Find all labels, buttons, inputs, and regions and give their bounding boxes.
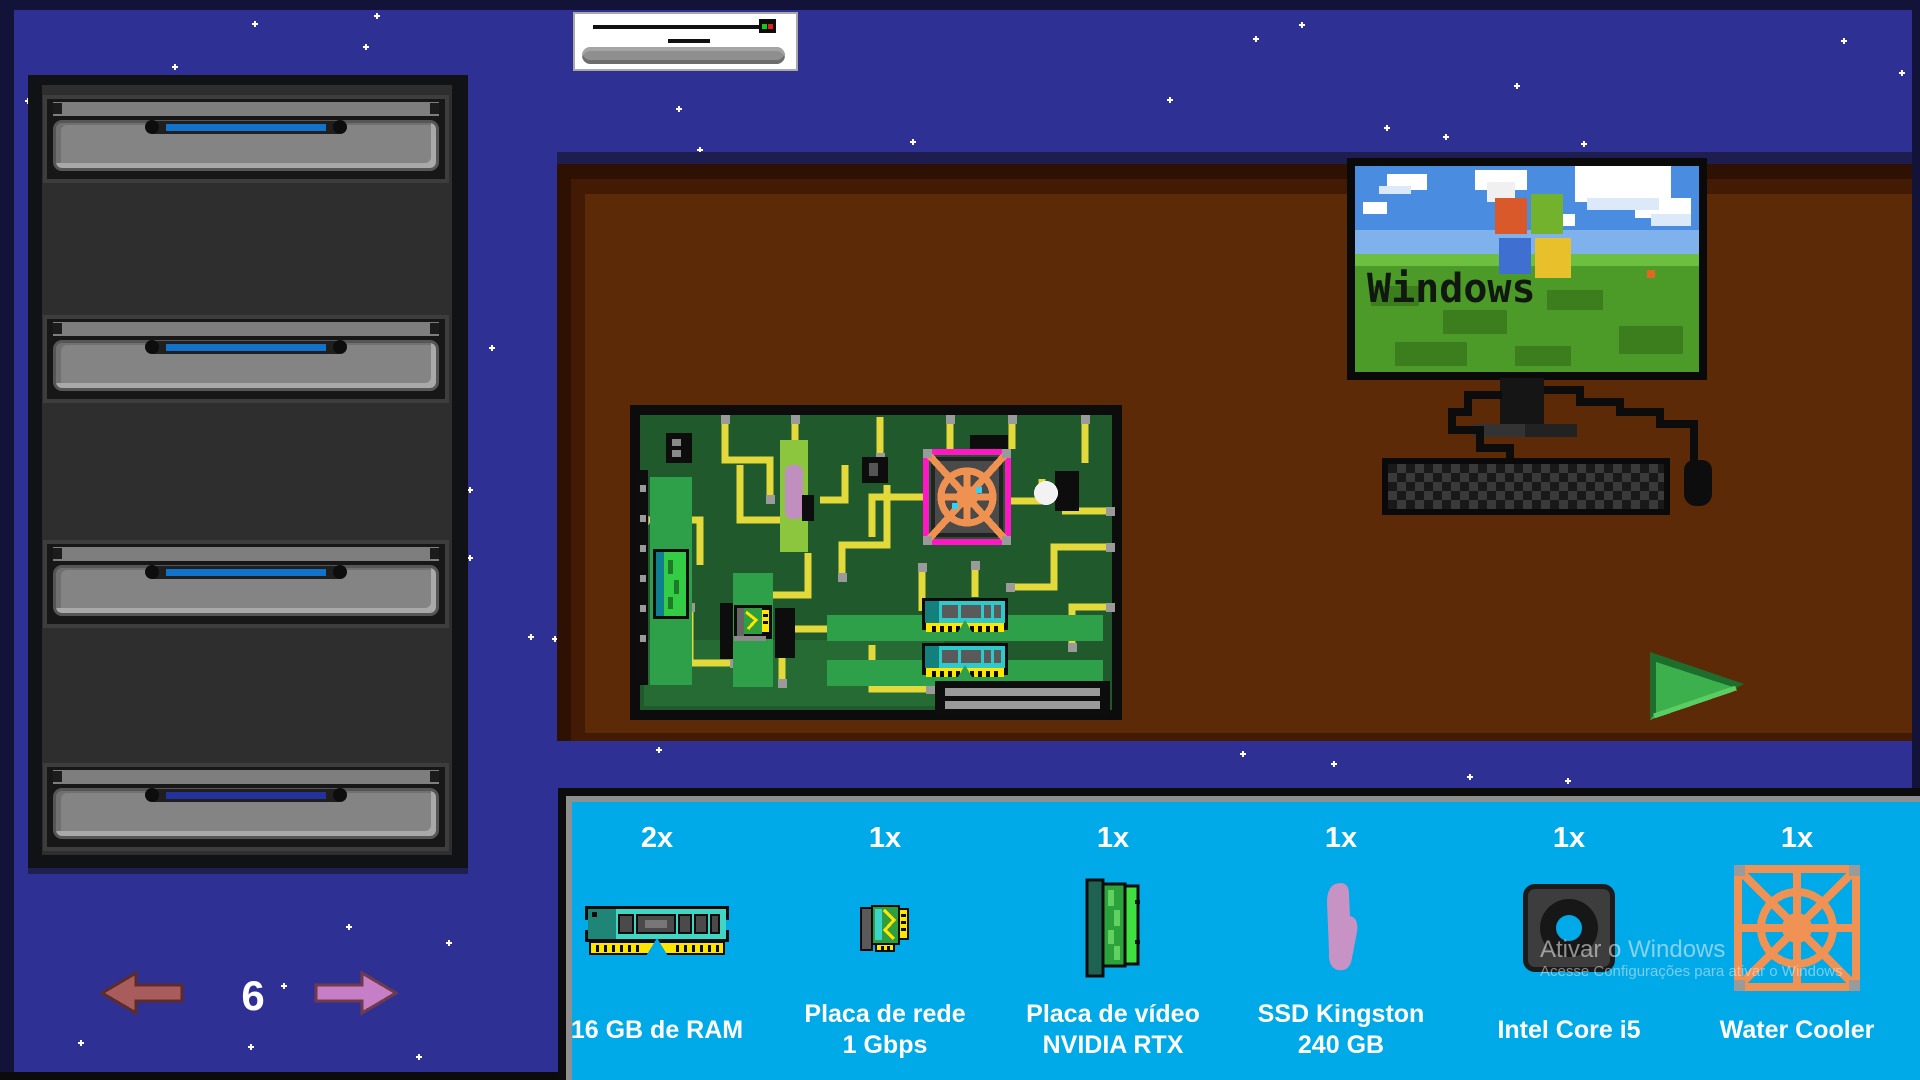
star	[1841, 38, 1847, 44]
star	[248, 1044, 254, 1050]
next-page-arrow[interactable]	[314, 970, 398, 1016]
motherboard[interactable]	[630, 405, 1122, 720]
installed-ram-2[interactable]	[922, 643, 1008, 677]
star	[1467, 774, 1473, 780]
mouse	[1684, 460, 1712, 506]
drawer-rail	[53, 770, 439, 784]
item-name: Intel Core i5	[1455, 994, 1683, 1066]
inventory-item-network-card[interactable]: 1x Placa de rede1 Gbps	[771, 796, 999, 1080]
item-name: SSD Kingston240 GB	[1227, 994, 1455, 1066]
star	[78, 1040, 84, 1046]
power-button[interactable]	[1034, 481, 1058, 505]
parts-cabinet	[28, 75, 468, 868]
star	[281, 983, 287, 989]
star	[1384, 125, 1390, 131]
drawer-front[interactable]	[53, 788, 439, 839]
inventory-item-ram[interactable]: 2x	[543, 796, 771, 1080]
drawer-front[interactable]	[53, 120, 439, 171]
keyboard	[1382, 458, 1670, 515]
monitor-brand-text: Windows	[1367, 266, 1536, 312]
star	[416, 1054, 422, 1060]
ssd-icon	[1319, 880, 1363, 976]
vent-bar	[582, 47, 785, 64]
gpu-icon	[1083, 878, 1143, 978]
star	[910, 139, 916, 145]
star	[676, 106, 682, 112]
item-count: 1x	[1455, 822, 1683, 855]
bottom-border	[0, 1072, 560, 1080]
monitor-screen: Windows	[1355, 166, 1699, 372]
item-name: Water Cooler	[1683, 994, 1911, 1066]
game-screen: Windows 2x	[0, 0, 1920, 1080]
item-count: 1x	[1227, 822, 1455, 855]
star	[172, 64, 178, 70]
board-connector	[1055, 471, 1079, 511]
prev-page-arrow[interactable]	[100, 970, 184, 1016]
item-count: 1x	[999, 822, 1227, 855]
windows-activation-watermark-line1: Ativar o Windows	[1540, 936, 1725, 964]
installed-gpu[interactable]	[653, 549, 689, 619]
star	[528, 634, 534, 640]
inventory-item-gpu[interactable]: 1x Placa de vídeoNVIDIA RTX	[999, 796, 1227, 1080]
drawer-rail	[53, 102, 439, 116]
cabinet-body	[42, 85, 452, 855]
star	[446, 940, 452, 946]
star	[1899, 70, 1905, 76]
drawer-handle[interactable]	[153, 566, 339, 579]
star	[374, 13, 380, 19]
inventory-item-ssd[interactable]: 1x SSD Kingston240 GB	[1227, 796, 1455, 1080]
installed-network-card[interactable]	[734, 605, 772, 641]
drawer-rail	[53, 547, 439, 561]
item-name: 16 GB de RAM	[543, 994, 771, 1066]
drawer-handle[interactable]	[153, 789, 339, 802]
display-line	[668, 39, 710, 43]
windows-activation-watermark-line2: Acesse Configurações para ativar o Windo…	[1540, 963, 1843, 980]
drawer-handle[interactable]	[153, 121, 339, 134]
item-name: Placa de rede1 Gbps	[771, 994, 999, 1066]
item-count: 1x	[1683, 822, 1911, 855]
star	[1299, 22, 1305, 28]
star	[346, 924, 352, 930]
drawer-front[interactable]	[53, 565, 439, 616]
star	[1167, 97, 1173, 103]
star	[489, 345, 495, 351]
item-count: 1x	[771, 822, 999, 855]
ram-icon	[582, 898, 732, 958]
item-name: Placa de vídeoNVIDIA RTX	[999, 994, 1227, 1066]
item-count: 2x	[543, 822, 771, 855]
port-block	[935, 681, 1110, 715]
star	[1240, 751, 1246, 757]
star	[1565, 778, 1571, 784]
drawer-slot-2[interactable]	[43, 315, 449, 403]
play-button[interactable]	[1648, 650, 1748, 722]
star	[1443, 134, 1449, 140]
air-conditioner	[573, 12, 798, 71]
star	[656, 747, 662, 753]
drawer-front[interactable]	[53, 340, 439, 391]
inventory-panel: 2x	[558, 788, 1920, 1080]
monitor: Windows	[1347, 158, 1707, 380]
star	[252, 21, 258, 27]
drawer-rail	[53, 322, 439, 336]
network-card-icon	[856, 899, 914, 957]
star	[363, 44, 369, 50]
page-number: 6	[228, 972, 278, 1020]
slider-track[interactable]	[593, 25, 761, 29]
star	[1514, 83, 1520, 89]
installed-water-cooler[interactable]	[923, 449, 1011, 545]
drawer-slot-1[interactable]	[43, 95, 449, 183]
installed-ssd[interactable]	[785, 465, 803, 519]
slider-knob-icon[interactable]	[759, 19, 776, 33]
star	[1331, 761, 1337, 767]
drawer-handle[interactable]	[153, 341, 339, 354]
drawer-slot-3[interactable]	[43, 540, 449, 628]
star	[1253, 36, 1259, 42]
installed-ram-1[interactable]	[922, 598, 1008, 632]
star	[1581, 141, 1587, 147]
drawer-slot-4[interactable]	[43, 763, 449, 851]
